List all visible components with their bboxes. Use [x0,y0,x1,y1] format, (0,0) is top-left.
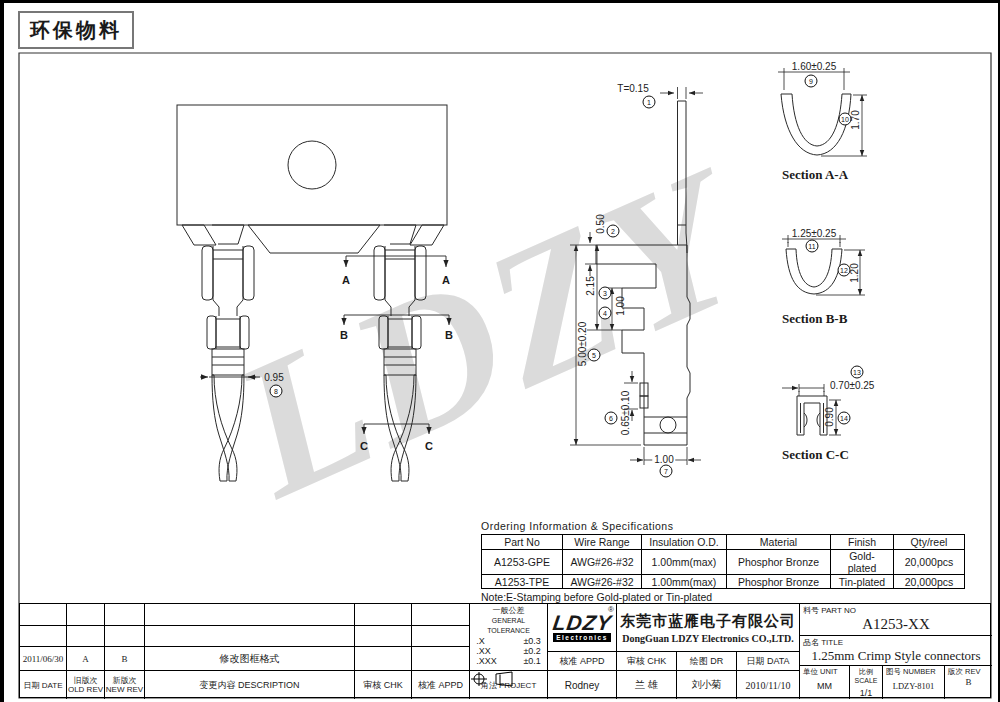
balloon-9: 9 [805,75,818,88]
date-label: 日期 DATA [737,652,800,671]
balloon-11: 11 [806,240,819,253]
chk-value: 兰 雄 [617,671,677,699]
col-insulation: Insulation O.D. [642,535,727,550]
eco-material-label: 环保物料 [18,11,134,49]
section-aa [781,94,851,155]
rev-cell-empty [412,626,470,647]
front-view [177,105,447,481]
section-bb [786,249,842,294]
cell: Tin-plated [831,575,894,589]
rev-cell-empty [145,626,355,647]
cell: Phosphor Bronze [727,575,831,589]
tol-xxx-val: ±0.1 [523,656,540,666]
col-wire-range: Wire Range [563,535,642,550]
drawing-sheet: LDZY [4,3,998,702]
ordering-note: Note:E-Stamping before Gold-plated or Ti… [481,591,965,603]
general-tolerance-box: 一般公差 GENERAL TOLERANCE .X±0.3 .XX±0.2 .X… [470,604,548,671]
dim-100-bottom: 1.00 [652,454,675,465]
tolerance-title-en: GENERAL TOLERANCE [470,616,547,636]
balloon-12: 12 [838,264,851,277]
rev-cell: 版次 REV B [945,666,992,699]
drawing-date-value: 2010/11/10 [737,671,800,699]
appd-value: Rodney [548,671,617,699]
rev-chk-label: 审核 CHK [355,671,412,699]
balloon-2: 2 [607,225,620,238]
cell: 20,000pcs [894,575,965,589]
dim-thickness: T=0.15 [617,83,648,94]
section-cc [797,396,827,435]
tol-xx-val: ±0.2 [523,646,540,656]
dim-120: 1.20 [849,263,860,282]
rev-desc-label: 变更内容 DESCRIPTION [145,671,355,699]
balloon-13: 13 [851,366,864,379]
rev-cell-empty [67,604,105,626]
dim-090: 0.90 [824,407,835,426]
rev-cell-empty [20,604,67,626]
balloon-14: 14 [838,412,851,425]
rev-old-label-cn: 旧版次 [68,676,103,685]
ldzy-logo: LDZY [551,614,612,632]
cell: Phosphor Bronze [727,550,831,575]
rev-old-label: 旧版次OLD REV [67,671,105,699]
tol-x: .X [476,636,485,646]
rev-appd-label: 核准 APPD [412,671,470,699]
dim-070: 0.70±0.25 [830,380,874,391]
title-cell: 品名 TITLE 1.25mm Crimp Style connectors [800,636,992,666]
number-label: 图号 NUMBER [886,667,936,677]
cell: AWG#26-#32 [563,575,642,589]
number-cell: 图号 NUMBER LDZY-8101 [883,666,945,699]
rev-new-label-cn: 新版次 [106,676,143,685]
ordering-row-tpe: A1253-TPE AWG#26-#32 1.00mm(max) Phospho… [482,575,965,589]
dr-value: 刘小菊 [677,671,737,699]
balloon-7: 7 [660,465,673,478]
section-aa-label: Section A-A [782,167,848,183]
rev-old: A [67,647,105,671]
scale-cell: 比例 SCALE 1/1 [850,666,883,699]
rev-cell-empty [412,604,470,626]
section-bb-label: Section B-B [782,311,847,327]
scale-label: 比例 SCALE [853,667,879,684]
balloon-10: 10 [839,113,852,126]
ordering-info: Ordering Information & Specifications Pa… [481,520,965,603]
cell: 20,000pcs [894,550,965,575]
rev-old-label-en: OLD REV [68,685,103,694]
cell: 1.00mm(max) [642,575,727,589]
section-cc-label: Section C-C [782,447,849,463]
number-value: LDZY-8101 [886,681,941,691]
cut-letter-a1: A [342,274,350,286]
company-cell: 东莞市蓝雁电子有限公司 DongGuan LDZY Electronics CO… [617,604,800,652]
col-finish: Finish [831,535,894,550]
ordering-row-gpe: A1253-GPE AWG#26-#32 1.00mm(max) Phospho… [482,550,965,575]
cut-letter-b1: B [340,329,348,341]
col-material: Material [727,535,831,550]
rev-date: 2011/06/30 [20,647,67,671]
rev-new-label: 新版次NEW REV [105,671,145,699]
projection-box: 角法 PROJECT [470,671,548,699]
unit-value: MM [803,681,846,691]
scale-value: 1/1 [853,688,879,698]
tol-xxx: .XXX [476,656,497,666]
tol-xx: .XX [476,646,491,656]
dim-095: 0.95 [264,372,283,383]
dim-160: 1.60±0.25 [792,61,836,72]
rev-cell-empty [355,647,412,671]
cut-letter-c1: C [360,440,368,452]
col-qty: Qty/reel [894,535,965,550]
company-name-cn: 东莞市蓝雁电子有限公司 [620,612,796,631]
cell: A1253-TPE [482,575,563,589]
rev-cell-empty [67,626,105,647]
drawing-sheet-canvas: LDZY [0,0,1000,702]
tol-x-val: ±0.3 [523,636,540,646]
rev-cell-empty [105,604,145,626]
unit-cell: 单位 UNIT MM [800,666,850,699]
rev-value: B [948,677,989,687]
title-label: 品名 TITLE [803,637,843,648]
balloon-6: 6 [605,412,618,425]
ordering-table: Part No Wire Range Insulation O.D. Mater… [481,534,965,589]
side-view [596,101,690,445]
cell: 1.00mm(max) [642,550,727,575]
company-name-en: DongGuan LDZY Electronics CO.,LTD. [622,633,793,644]
title-value: 1.25mm Crimp Style connectors [803,648,989,664]
dr-label: 绘图 DR [677,652,737,671]
cell: Gold-plated [831,550,894,575]
chk-label: 审核 CHK [617,652,677,671]
col-part-no: Part No [482,535,563,550]
rev-desc: 修改图框格式 [145,647,355,671]
tolerance-title-cn: 一般公差 [493,606,525,616]
balloon-3: 3 [599,287,612,300]
rev-new-label-en: NEW REV [106,685,143,694]
rev-cell-empty [20,626,67,647]
part-no-cell: 料号 PART NO A1253-XX [800,604,992,636]
dim-050: 0.50 [595,214,606,233]
ordering-header-row: Part No Wire Range Insulation O.D. Mater… [482,535,965,550]
rev-date-label: 日期 DATE [20,671,67,699]
rev-cell-empty [355,604,412,626]
cut-letter-b2: B [445,329,453,341]
logo-cell: ® LDZY Electronics [548,604,617,652]
unit-label: 单位 UNIT [803,667,838,677]
balloon-4: 4 [599,307,612,320]
balloon-8: 8 [270,385,283,398]
rev-label: 版次 REV [948,667,981,677]
dim-125: 1.25±0.25 [792,228,836,239]
appd-label: 核准 APPD [548,652,617,671]
balloon-5: 5 [588,349,601,362]
first-angle-projection-icon [470,671,516,687]
rev-cell-empty [145,604,355,626]
cell: A1253-GPE [482,550,563,575]
rev-cell-empty [105,626,145,647]
cell: AWG#26-#32 [563,550,642,575]
rev-cell-empty [412,647,470,671]
dim-215: 2.15 [585,276,596,295]
ordering-title: Ordering Information & Specifications [481,520,965,532]
dim-065: 0.65±0.10 [620,391,631,435]
part-no-label: 料号 PART NO [803,605,856,616]
cut-letter-a2: A [442,274,450,286]
cut-letter-c2: C [425,440,433,452]
rev-cell-empty [355,626,412,647]
rev-new: B [105,647,145,671]
dim-500: 5.00±0.20 [577,322,588,366]
balloon-1: 1 [643,96,656,109]
part-no-value: A1253-XX [803,616,989,633]
title-block: 2011/06/30 A B 修改图框格式 日期 DATE 旧版次OLD REV… [19,603,991,698]
dim-100-mid: 1.00 [615,296,626,315]
